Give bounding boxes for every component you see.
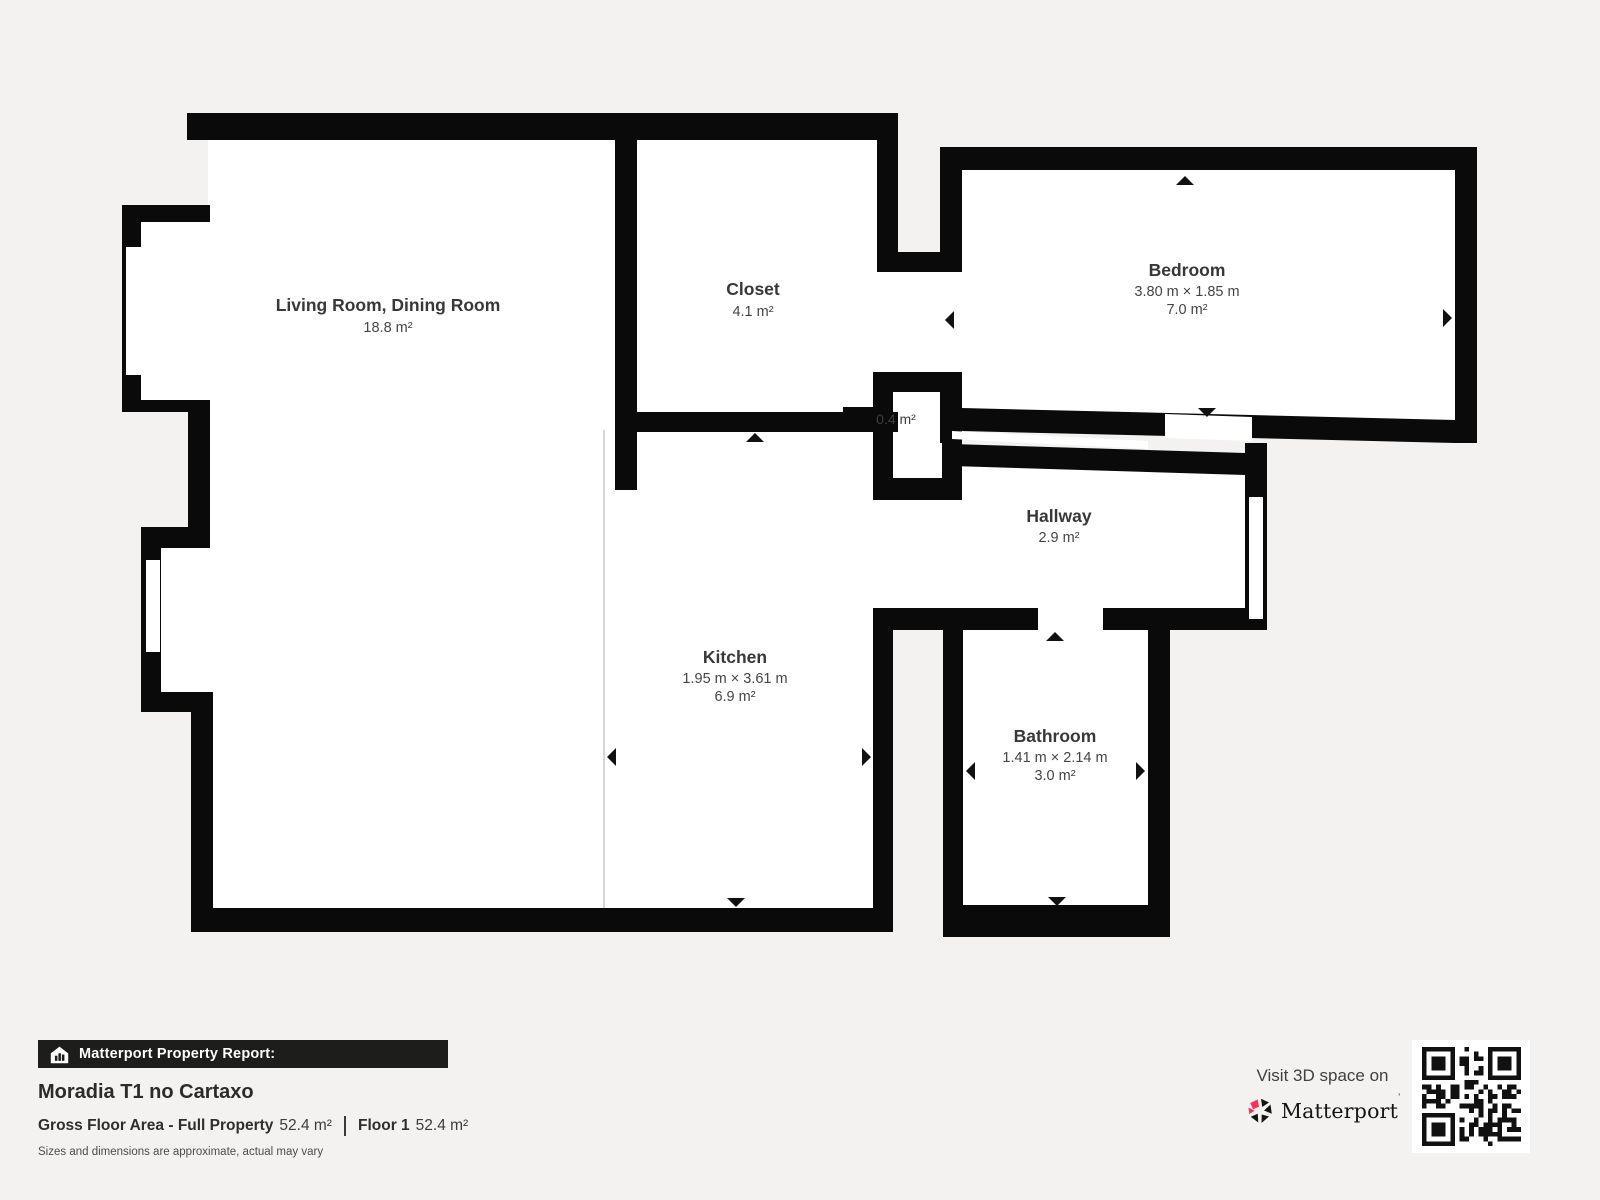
living-room-bay-lower [161,548,213,694]
bedroom-dimensions: 3.80 m × 1.85 m [1134,284,1239,300]
wall-bathroom-right [1148,630,1170,905]
bedroom-name: Bedroom [1149,260,1226,280]
wall-bedroom-right [1455,147,1477,443]
wall-bottom [191,908,893,932]
gross-area-value: 52.4 m² [279,1117,332,1135]
window-hallway-right [1249,497,1263,619]
floor-area-line: Gross Floor Area - Full Property 52.4 m²… [38,1116,558,1136]
matterport-wordmark: Matterport [1281,1099,1398,1123]
window-living-lower [146,560,160,652]
disclaimer-text: Sizes and dimensions are approximate, ac… [38,1146,558,1158]
bedroom-area: 7.0 m² [1166,302,1207,318]
kitchen-area: 6.9 m² [714,689,755,705]
wall-left-lower [191,712,213,908]
trademark-tick: ’ [1398,1092,1400,1102]
wall-bathroom-left [943,630,963,905]
floor-label: Floor 1 [358,1117,410,1135]
property-title: Moradia T1 no Cartaxo [38,1081,558,1104]
floor-plan: Living Room, Dining Room 18.8 m² Closet … [0,0,1600,1010]
door-bathroom [1038,608,1103,630]
report-header-bar: Matterport Property Report: [38,1040,448,1068]
door-bedroom [1165,414,1252,441]
house-chart-icon [50,1045,69,1064]
matterport-pinwheel-icon [1245,1096,1275,1126]
qr-code [1412,1040,1530,1153]
wall-bedroom-top [940,147,1477,170]
bathroom-dimensions: 1.41 m × 2.14 m [1002,750,1107,766]
living-room-name: Living Room, Dining Room [276,295,501,315]
divider [344,1116,346,1136]
living-room-area: 18.8 m² [363,320,412,336]
wall-left-stub [843,407,873,430]
kitchen-interior [605,430,873,908]
report-bar-label: Matterport Property Report: [79,1046,275,1062]
property-report-block: Matterport Property Report: Moradia T1 n… [38,1040,558,1158]
hallway-name: Hallway [1026,506,1091,526]
kitchen-name: Kitchen [703,647,767,667]
bathroom-name: Bathroom [1014,726,1097,746]
wall-kitchen-right [873,610,893,908]
closet-interior [637,137,877,412]
kitchen-dimensions: 1.95 m × 3.61 m [682,671,787,687]
visit-3d-text: Visit 3D space on [1257,1066,1389,1086]
wall-bay2-bottom [141,692,213,712]
living-room-interior [208,135,638,908]
hallway-area: 2.9 m² [1038,530,1079,546]
wall-living-closet-divider [615,113,637,490]
wall-small-closet-bottom [873,478,962,500]
wall-bedroom-left-upper [940,147,962,262]
wall-left-mid [188,402,210,527]
gross-area-label: Gross Floor Area - Full Property [38,1117,273,1135]
floor-area-value: 52.4 m² [416,1117,469,1135]
closet-area: 4.1 m² [732,304,773,320]
wall-top [187,113,898,140]
matterport-brand: Matterport’ [1245,1096,1400,1126]
wall-bathroom-bottom [943,905,1170,937]
promo-block: Visit 3D space on Matterport’ [1240,1066,1405,1126]
bathroom-area: 3.0 m² [1034,768,1075,784]
closet-name: Closet [726,279,780,299]
living-room-bay-upper [140,222,210,402]
small-closet-area: 0.4 m² [876,411,916,427]
qr-code-pattern [1422,1047,1521,1146]
window-living-upper [126,247,141,375]
